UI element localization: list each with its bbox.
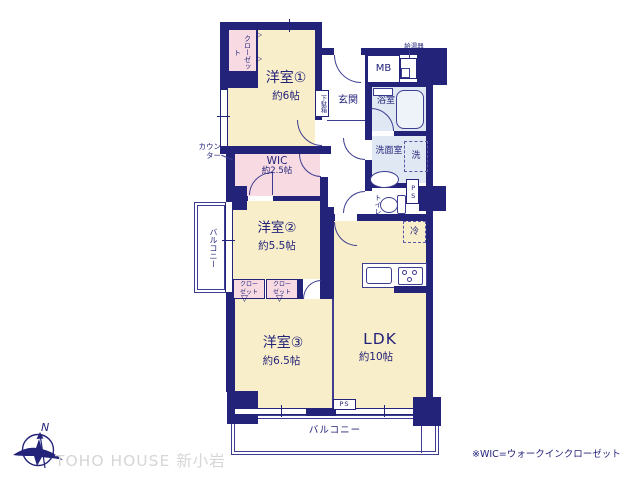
- balcony-label-left: バルコニー: [206, 221, 218, 275]
- pipe-space-label: PS: [334, 400, 355, 409]
- wall: [320, 177, 328, 208]
- pipe-space-bottom: PS: [333, 399, 356, 410]
- toilet-tank: [397, 195, 406, 214]
- toilet-label: トイレ: [371, 191, 382, 218]
- pipe-space-label: PS: [409, 181, 416, 203]
- wic-note-text: ※WIC=ウォークインクローゼット: [472, 446, 638, 460]
- folding-door-mark: ▷: [256, 55, 262, 63]
- floor-plan: クローゼット ▷ ▷ クローゼット クローゼット ▽ ▽ MB 洗 冷 下駄箱 …: [0, 0, 640, 480]
- fridge-space: 冷: [403, 221, 426, 243]
- room-label-yoshitsu3: 洋室③: [234, 335, 332, 351]
- washer-label: 洗: [405, 142, 427, 171]
- room-label-ldk: LDK: [334, 331, 426, 349]
- washer-space: 洗: [404, 141, 428, 172]
- entrance-label: 玄関: [329, 95, 367, 107]
- room-label-yoshitsu1: 洋室①: [240, 70, 332, 86]
- washroom-label: 洗面室: [371, 146, 407, 156]
- wall: [273, 196, 320, 201]
- water-heater-label: 給湯器: [396, 43, 432, 50]
- water-heater-detail: [401, 68, 410, 78]
- closet-label: クローゼット: [233, 32, 253, 72]
- kitchen-stove: [398, 267, 423, 285]
- door-arc-toilet: [343, 191, 365, 213]
- closet-top: クローゼット: [227, 28, 258, 73]
- bath-counter: [373, 88, 393, 96]
- stove-burner: [407, 277, 412, 282]
- kitchen-sink: [366, 267, 392, 284]
- toilet-bowl: [380, 197, 398, 213]
- room-label-yoshitsu2: 洋室②: [233, 221, 321, 237]
- front-door-arc: [334, 55, 361, 83]
- entrance-step-line: [327, 120, 365, 121]
- wall: [426, 55, 433, 408]
- wall: [322, 48, 334, 55]
- folding-door-mark: ▽: [276, 295, 283, 304]
- pillar: [413, 397, 441, 426]
- leader-line: [409, 50, 410, 59]
- window-tick: [384, 405, 385, 417]
- window-tick: [281, 405, 282, 417]
- window: [225, 202, 233, 292]
- meter-box-label: MB: [368, 56, 399, 81]
- folding-door-mark: ▷: [256, 31, 262, 39]
- room-size-yoshitsu3: 約6.5帖: [234, 355, 329, 367]
- room-size-wic: 約2.5帖: [234, 167, 320, 177]
- window-tick: [289, 19, 290, 32]
- meter-box: MB: [367, 55, 400, 83]
- wall: [220, 146, 331, 154]
- room-size-yoshitsu1: 約6帖: [240, 90, 332, 102]
- wall: [357, 214, 433, 221]
- folding-door-mark: ▽: [241, 295, 248, 304]
- wall: [365, 131, 371, 136]
- window-tick: [217, 116, 230, 117]
- room-ldk-floor: [334, 221, 426, 408]
- compass-north-label: N: [41, 421, 49, 434]
- room-size-yoshitsu2: 約5.5帖: [233, 240, 321, 252]
- window: [220, 90, 228, 147]
- washbasin: [370, 171, 399, 188]
- pillar: [419, 186, 446, 211]
- room-size-ldk: 約10帖: [330, 351, 422, 363]
- wall: [394, 131, 426, 136]
- counter-label: カウンター: [195, 143, 221, 160]
- door-arc-yoshitsu2: [303, 280, 321, 299]
- balcony-label-bottom: バルコニー: [231, 426, 439, 437]
- kitchen-partition-wall: [394, 286, 427, 293]
- fridge-label: 冷: [404, 222, 425, 243]
- wall: [234, 196, 248, 201]
- wall: [320, 207, 334, 299]
- pipe-space-right: PS: [406, 179, 419, 204]
- closet-1: クローゼット: [233, 279, 265, 299]
- bathroom-label: 浴室: [371, 96, 401, 106]
- watermark-text: TOHO HOUSE 新小岩: [55, 449, 275, 471]
- stove-burner: [412, 270, 417, 275]
- door-arc-washroom: [343, 138, 365, 160]
- stove-burner: [402, 270, 407, 275]
- wall: [320, 148, 328, 153]
- wall: [306, 408, 336, 416]
